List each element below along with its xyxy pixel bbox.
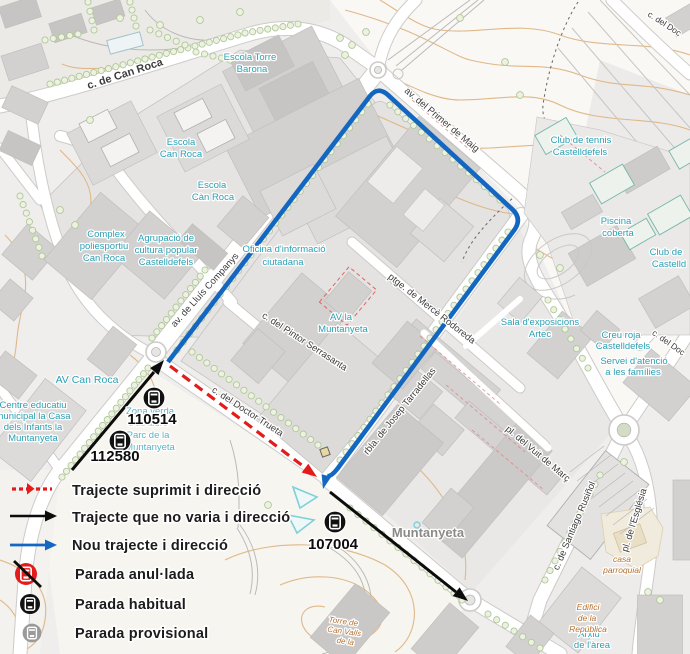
svg-text:AV la: AV la: [330, 312, 353, 323]
svg-text:República: República: [569, 624, 607, 634]
svg-text:Club de tennis: Club de tennis: [551, 135, 612, 146]
svg-text:de l'àrea: de l'àrea: [574, 640, 611, 651]
svg-text:AV Can Roca: AV Can Roca: [56, 374, 119, 386]
svg-text:Castelldefels: Castelldefels: [139, 257, 194, 268]
svg-text:Parada anul·lada: Parada anul·lada: [75, 567, 195, 583]
svg-text:Escola Torre: Escola Torre: [224, 52, 277, 63]
svg-text:Agrupació de: Agrupació de: [138, 233, 194, 244]
svg-text:Oficina d'informació: Oficina d'informació: [242, 244, 325, 255]
svg-text:Castelldefels: Castelldefels: [596, 341, 651, 352]
svg-text:municipal la Casa: municipal la Casa: [0, 411, 71, 422]
svg-text:Edifici: Edifici: [577, 602, 601, 612]
svg-text:Creu roja: Creu roja: [601, 330, 641, 341]
svg-text:Artec: Artec: [529, 329, 551, 340]
svg-text:Càn Roca: Càn Roca: [192, 192, 235, 203]
svg-text:cultura popular: cultura popular: [135, 245, 198, 256]
svg-text:Barona: Barona: [237, 64, 268, 75]
svg-text:Escola: Escola: [198, 180, 227, 191]
svg-text:107004: 107004: [308, 536, 359, 553]
svg-text:Castelld: Castelld: [652, 259, 686, 270]
svg-text:Muntanyeta: Muntanyeta: [8, 433, 58, 444]
svg-text:poliesportiu: poliesportiu: [80, 241, 129, 252]
svg-text:Parada provisional: Parada provisional: [75, 626, 208, 642]
svg-text:Sala d'exposicions: Sala d'exposicions: [501, 317, 580, 328]
svg-text:Parada habitual: Parada habitual: [75, 597, 186, 613]
svg-text:Servei d'atenció: Servei d'atenció: [600, 356, 667, 367]
svg-text:dels Infants la: dels Infants la: [4, 422, 63, 433]
svg-text:casa: casa: [613, 554, 631, 564]
svg-text:Muntanyeta: Muntanyeta: [318, 324, 368, 335]
svg-text:Complex: Complex: [87, 229, 125, 240]
svg-text:Can Roca: Can Roca: [83, 253, 126, 264]
svg-text:Can Roca: Can Roca: [160, 149, 203, 160]
svg-text:110514: 110514: [127, 411, 177, 428]
svg-text:Trajecte suprimit i direcció: Trajecte suprimit i direcció: [72, 483, 261, 499]
svg-text:ciutadana: ciutadana: [262, 257, 304, 268]
svg-text:Parc de la: Parc de la: [127, 430, 170, 441]
svg-text:Muntanyeta: Muntanyeta: [392, 525, 465, 540]
svg-text:de la: de la: [578, 613, 597, 623]
svg-text:Piscina: Piscina: [601, 216, 632, 227]
svg-text:a les famílies: a les famílies: [605, 367, 661, 378]
svg-text:Nou trajecte i direcció: Nou trajecte i direcció: [72, 538, 228, 554]
svg-text:Centre educatiu: Centre educatiu: [0, 400, 67, 411]
svg-text:coberta: coberta: [602, 228, 634, 239]
svg-text:Escola: Escola: [167, 137, 196, 148]
svg-text:Castelldefels: Castelldefels: [553, 147, 608, 158]
svg-text:Club de: Club de: [650, 247, 683, 258]
svg-text:112580: 112580: [90, 448, 139, 465]
svg-text:Trajecte que no varia i direcc: Trajecte que no varia i direcció: [72, 510, 290, 526]
svg-text:parroquial: parroquial: [602, 565, 642, 575]
